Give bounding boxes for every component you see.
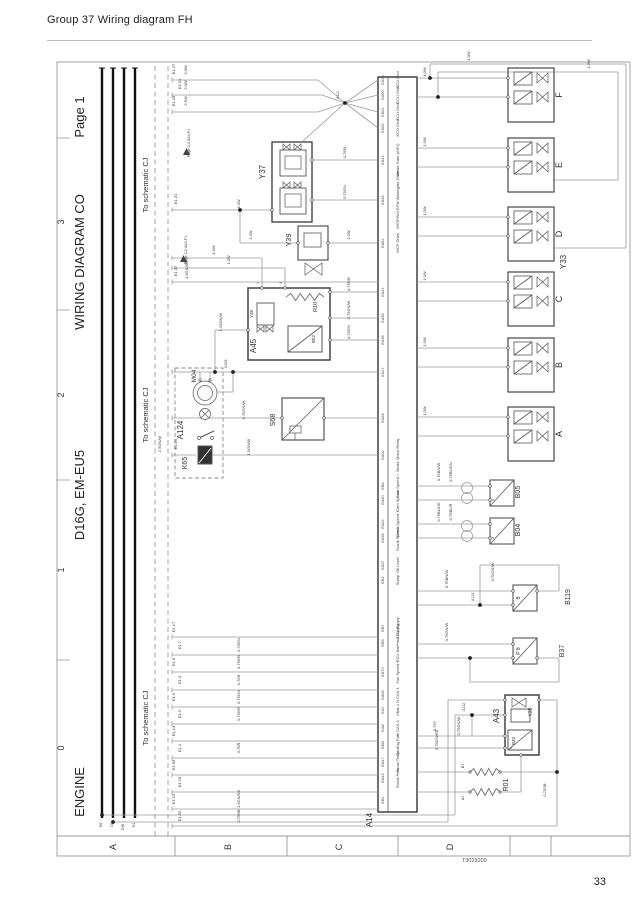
pin	[271, 209, 274, 212]
component-label: R10	[313, 302, 319, 312]
pin	[489, 523, 492, 526]
ecu-pin-id: EB6	[381, 482, 385, 489]
injector-letter: A	[554, 431, 564, 437]
injector-coil-diag	[514, 72, 532, 85]
wire-label: 0.75GN	[236, 638, 241, 652]
wire-label: 0.75GN/W	[456, 716, 461, 735]
ecu-pin-id: EA44	[381, 155, 385, 164]
wire-label: 0.75BL/R	[448, 504, 453, 521]
pin	[311, 199, 314, 202]
junction-label: X113	[471, 593, 475, 602]
component-label: B119	[565, 589, 572, 605]
injector-letter: C	[554, 295, 564, 302]
valve-bowtie-icon	[266, 326, 273, 332]
ecu-pin-id: EA28	[381, 413, 385, 422]
valve-bowtie-icon	[512, 698, 526, 707]
junction-label: X103	[224, 360, 228, 369]
wire-label: 0.75GR	[346, 277, 351, 291]
valve-bowtie-icon	[283, 144, 290, 150]
pin-label: E1.01	[177, 78, 182, 89]
component-label: S68	[270, 414, 277, 427]
component-label: Y39	[286, 234, 293, 247]
grid-col-d: D	[445, 843, 455, 850]
component-label: A124	[176, 420, 185, 439]
ecu-pin-id: EA48	[381, 195, 385, 204]
y37-coil-1-core	[285, 156, 301, 169]
title-diagram: WIRING DIAGRAM CO	[72, 194, 87, 330]
twisted-pair-icon	[462, 483, 473, 494]
junction-dot	[213, 370, 217, 374]
ecu-signal-name: H CAN 2	[395, 719, 400, 736]
wire-label: 0.75GR	[236, 707, 241, 721]
wire	[345, 80, 378, 103]
injector-coil-diag	[514, 411, 532, 424]
injector-coil-diag	[514, 142, 532, 155]
wire-label: 2.0W	[183, 80, 188, 90]
pin-label: E1.5	[171, 692, 176, 701]
manual-page: Group 37 Wiring diagram FH F1.0WE1.0WD1.…	[0, 0, 638, 903]
wire-label: 0.75BN/W	[436, 463, 441, 481]
pin	[507, 216, 510, 219]
wire-label: 0.75GN/SB	[434, 730, 439, 751]
sensor-s68-diag	[282, 398, 324, 440]
page-ref: Page 2-2 A44.F1	[184, 236, 188, 265]
wire	[345, 103, 378, 128]
wire	[345, 103, 378, 112]
component-label: K65	[182, 457, 189, 470]
ecu-pin-id: EA70	[381, 667, 385, 676]
injector-coil-diag	[514, 230, 532, 243]
ecu-signal-name: ECU Gnd	[395, 86, 400, 103]
junction-label: X111	[336, 91, 340, 99]
page-ref: Page 2-2 A44.F1	[187, 129, 191, 158]
component-label: Y33	[559, 254, 568, 269]
pin	[512, 643, 515, 646]
pin-label: E1.37	[173, 265, 178, 276]
temp-symbol: θ	[516, 596, 522, 599]
pin	[198, 386, 213, 401]
bus-label: 61	[131, 822, 136, 827]
injector-letter: B	[554, 362, 564, 368]
pin	[323, 417, 326, 420]
pin	[507, 235, 510, 238]
ecu-signal-name: ECU Gnd	[395, 103, 400, 120]
wire-label: 1.0W	[248, 230, 253, 240]
ecu-pin-id: EA35	[381, 313, 385, 322]
ecu-pin-id: EM3	[381, 741, 385, 749]
wire-label: 0.75GN/W	[444, 622, 449, 641]
pin-label: E1.17	[171, 621, 176, 632]
pin	[512, 657, 515, 660]
valve-bowtie-icon	[537, 92, 548, 102]
y37-coil-2-core	[285, 194, 301, 207]
wire-label: 2.5GN/W	[157, 436, 162, 453]
ecu-signal-name: Oil Level	[395, 557, 400, 573]
injector-unit-E	[508, 138, 554, 192]
unit-a45	[248, 288, 330, 360]
pin-label: E1.13	[171, 793, 176, 804]
resistor-zigzag-icon	[470, 789, 500, 796]
ecu-signal-name: ECU BatPwrd Supply	[395, 624, 400, 662]
pin-label: E1.3	[177, 675, 182, 684]
component-label: Y38	[249, 310, 254, 319]
valve-bowtie-icon	[537, 296, 548, 306]
ecu-signal-name: Cam Speed -	[395, 488, 400, 512]
pressure-temp-symbol: P θ	[516, 647, 522, 655]
pin	[329, 291, 332, 294]
injector-letter: E	[554, 162, 564, 168]
title-variant: D16G, EM-EU5	[72, 450, 87, 540]
component-label: B37	[559, 645, 566, 658]
ecu-signal-name: WCP Drive	[395, 232, 400, 252]
junction-dot	[470, 713, 474, 717]
junction-dot	[478, 603, 482, 607]
pin	[261, 287, 264, 290]
sensor-b05-diag	[490, 480, 514, 506]
twisted-pair-icon	[462, 531, 473, 542]
y39-coil-core	[304, 233, 321, 247]
injector-unit-C	[508, 272, 554, 326]
injector-coil-diag	[514, 161, 532, 174]
injector-letter: F	[554, 92, 564, 98]
ecu-signal-name: Fan Speed +	[395, 660, 400, 684]
component-label: A43	[492, 708, 501, 723]
pin	[504, 714, 507, 717]
valve-bowtie-icon	[257, 326, 264, 332]
pin-label: E1.2	[177, 709, 182, 718]
grid-row-2: 2	[56, 392, 66, 397]
junction-dot	[555, 770, 559, 774]
pin	[199, 379, 201, 381]
wire-label: 0.75EL	[342, 145, 347, 158]
pin	[507, 366, 510, 369]
resistor-zigzag-icon	[286, 294, 324, 301]
component-label: M04	[191, 369, 198, 382]
valve-bowtie-icon	[294, 144, 301, 150]
ecu-signal-name: WG/PWM EPM Wastegate Drive	[395, 170, 400, 229]
ecu-pin-id: EA40	[381, 495, 385, 504]
injector-coil-diag	[514, 295, 532, 308]
valve-y39	[298, 226, 328, 260]
junction-dot	[428, 76, 432, 80]
y37-coil-1	[280, 150, 306, 176]
wire-label: 1.0W	[586, 59, 591, 69]
drawing-number: T3029209	[462, 858, 487, 864]
valve-bowtie-icon	[537, 162, 548, 172]
wire-label: 0.75BL/GE	[436, 502, 441, 522]
pin	[507, 300, 510, 303]
bus-label: DI6	[120, 823, 125, 830]
pin	[504, 735, 507, 738]
junction-dot	[468, 656, 472, 660]
grid-col-c: C	[334, 843, 344, 850]
to-schematic-cj: To schematic CJ	[141, 157, 150, 212]
ecu-pin-id: EA22	[381, 519, 385, 528]
component-label: B04	[515, 524, 522, 537]
ecu-pin-id: EA50	[381, 90, 385, 99]
wire	[318, 80, 345, 103]
pin-label: E1.09	[171, 759, 176, 770]
wire-label: 1.0W	[422, 206, 427, 216]
pin	[536, 657, 539, 660]
pin	[536, 590, 539, 593]
title-page: Page 1	[72, 96, 87, 137]
component-label: R01	[503, 778, 510, 791]
pin	[247, 329, 250, 332]
pin	[193, 381, 217, 405]
pin	[507, 347, 510, 350]
wire-label: 0.75GN/W	[241, 400, 246, 419]
ecu-signal-name: H CAN 1	[395, 686, 400, 703]
component-label: A45	[249, 338, 258, 353]
component-label: Y37	[258, 164, 267, 179]
ecu-pin-id: EA47	[381, 757, 385, 766]
ecu-signal-name: ECU Gnd	[395, 71, 400, 88]
pin-label: 4	[279, 282, 283, 284]
injector-coil-diag	[514, 91, 532, 104]
pin-label: E1.7	[177, 640, 182, 649]
pin-label: E1.25	[173, 438, 178, 449]
twisted-pair-icon	[462, 493, 473, 504]
ecu-pin-id: EA17	[381, 367, 385, 376]
junction-dot	[231, 370, 235, 374]
ecu-signal-name: ECU Gnd	[395, 119, 400, 136]
pin	[507, 166, 510, 169]
junction-dot	[436, 95, 440, 99]
wire-label: 0.75GN	[236, 690, 241, 704]
pin	[211, 437, 214, 440]
injector-unit-F	[508, 68, 554, 122]
ecu-pin-id: EA36	[381, 335, 385, 344]
wire-label: 1.0W	[422, 337, 427, 347]
pin-label: n	[491, 499, 495, 501]
pin	[520, 754, 523, 757]
page-number: 33	[594, 876, 606, 888]
pin	[507, 416, 510, 419]
valve-bowtie-icon	[537, 362, 548, 372]
ecu-pin-id: EA43	[381, 773, 385, 782]
pin	[284, 287, 287, 290]
wire-label: 0.75Y	[432, 720, 437, 731]
valve-bowtie-icon	[537, 277, 548, 287]
wire-label: 0.75R	[236, 675, 241, 686]
ecu-pin-id: EA30	[381, 75, 385, 84]
bus-label: 60	[98, 822, 103, 827]
wire-label: 1.0W	[226, 255, 231, 265]
pin	[329, 317, 332, 320]
grid-row-1: 1	[56, 567, 66, 572]
wire-label: 0.75GN	[346, 325, 351, 339]
wire-label: 0.75GN	[342, 185, 347, 199]
ecu-pin-id: EB1	[381, 796, 385, 803]
valve-bowtie-icon	[537, 212, 548, 222]
wire-label: 1.0W	[422, 271, 427, 281]
wire-label: 1.0W	[422, 406, 427, 416]
wire-label: 1.0W	[236, 199, 241, 209]
pin-label: B1	[461, 764, 465, 768]
ecu-pin-id: EB2	[381, 576, 385, 583]
pin	[512, 590, 515, 593]
wire-label: 1.0W	[466, 51, 471, 61]
grid-row-3: 3	[56, 219, 66, 224]
injector-coil-diag	[514, 211, 532, 224]
pin	[327, 242, 330, 245]
wire-label: 1.5GN/SB	[236, 790, 241, 808]
ecu-pin-id: EA37	[381, 560, 385, 569]
pin	[507, 435, 510, 438]
ecu-pin-id: EA7	[381, 706, 385, 713]
valve-bowtie-icon	[305, 263, 322, 275]
wire-label: 1.0W	[422, 67, 427, 77]
wire-label: 0.75R	[236, 743, 241, 754]
pin-label: n	[509, 747, 513, 749]
pin	[198, 437, 201, 440]
pin-label: 1	[256, 282, 260, 284]
pin	[297, 242, 300, 245]
component-label: B05	[515, 486, 522, 499]
title-engine: ENGINE	[72, 767, 87, 817]
pin-label: E1.27	[171, 63, 176, 74]
junction-dot	[343, 101, 347, 105]
wire	[318, 103, 345, 112]
injector-unit-D	[508, 207, 554, 261]
wire-label: 0.75GR	[236, 655, 241, 669]
ecu-signal-name: Crank Speed -	[395, 524, 400, 550]
ecu-signal-name: Boost Pres	[395, 768, 400, 788]
junction-label: X112	[462, 703, 466, 712]
injector-coil-diag	[514, 342, 532, 355]
component-label: B52	[311, 335, 316, 344]
wire-label: 1.0W	[211, 245, 216, 255]
valve-bowtie-icon	[537, 343, 548, 353]
wire-label: 0.75GN/W	[490, 562, 495, 581]
ecu-signal-name: Brake Motor Relay	[395, 438, 400, 471]
pin	[507, 96, 510, 99]
pin	[504, 747, 507, 750]
ecu-signal-name: VBat-1	[395, 703, 400, 716]
component-label: B32	[511, 737, 516, 746]
pin-label: E1.15	[177, 776, 182, 787]
wire-label: 1.0GN/W	[246, 439, 251, 456]
ecu-pin-id: EA21	[381, 287, 385, 296]
pin-label: E1.14	[171, 725, 176, 736]
to-schematic-cj: To schematic CJ	[141, 387, 150, 442]
pin-label: E1.1	[177, 743, 182, 752]
injector-coil-diag	[514, 276, 532, 289]
wire-label: 2.0W	[183, 65, 188, 75]
valve-bowtie-icon	[537, 231, 548, 241]
ecu-pin-id: EA51	[381, 107, 385, 116]
wire-label: 0.75SB	[236, 809, 241, 822]
pin	[329, 339, 332, 342]
ecu-pin-id: EA61	[381, 238, 385, 247]
injector-coil-diag	[514, 361, 532, 374]
resistor-zigzag-icon	[470, 769, 500, 776]
valve-bowtie-icon	[537, 73, 548, 83]
twisted-pair-icon	[462, 521, 473, 532]
pin-label: A1	[461, 796, 465, 800]
injector-unit-A	[508, 407, 554, 461]
pin	[281, 417, 284, 420]
grid-col-a: A	[108, 844, 118, 850]
wire-label: 1.25GN/W	[218, 312, 223, 331]
injector-letter: D	[554, 230, 564, 237]
ecu-pin-id: EA52	[381, 123, 385, 132]
pin	[504, 699, 507, 702]
ecu-pin-id: EB7	[381, 624, 385, 631]
injector-unit-B	[508, 338, 554, 392]
grid-row-0: 0	[56, 745, 66, 750]
pin-label: n	[491, 537, 495, 539]
wire-label: 0.75GN/W	[346, 300, 351, 319]
bus-label: 15	[109, 822, 114, 827]
pin-label: E1.32	[177, 810, 182, 821]
valve-bowtie-icon	[294, 182, 301, 188]
component-label: Y35	[528, 707, 534, 716]
wire-label: 0.75BL/GN	[448, 462, 453, 482]
to-schematic-cj: To schematic CJ	[141, 690, 150, 745]
wire-label: 0.75SB	[542, 783, 547, 796]
pin	[507, 77, 510, 80]
pin-label: E1.6	[171, 657, 176, 666]
y37-coil-2	[280, 188, 306, 214]
pin	[507, 281, 510, 284]
wire	[345, 95, 378, 103]
valve-bowtie-icon	[537, 412, 548, 422]
wire-label: 2.5W	[183, 96, 188, 106]
injector-coil-diag	[514, 430, 532, 443]
wire-label: 1.0W	[422, 137, 427, 147]
ecu-pin-id: EA02	[381, 450, 385, 459]
wiring-diagram: F1.0WE1.0WD1.0WC1.0WB1.0WA1.0WPage 1WIRI…	[0, 0, 638, 903]
ecu-signal-name: Sump	[395, 574, 400, 585]
pin	[507, 147, 510, 150]
pin	[209, 379, 211, 381]
wire	[322, 95, 345, 103]
ecu-pin-id: EB5	[381, 639, 385, 646]
sensor-b52-diag	[288, 326, 322, 352]
pin-label: E1.31	[173, 193, 178, 204]
pin	[489, 485, 492, 488]
pin	[311, 159, 314, 162]
component-label: A14	[365, 812, 374, 827]
valve-bowtie-icon	[537, 143, 548, 153]
ecu-pin-id: EA8	[381, 724, 385, 731]
wire	[302, 103, 345, 142]
ecu-pin-id: EA56	[381, 690, 385, 699]
pin-label: E1.29	[171, 95, 176, 106]
ecu-pin-id: EA39	[381, 533, 385, 542]
valve-bowtie-icon	[537, 431, 548, 441]
wire-label: 0.75BN/W	[444, 570, 449, 588]
sensor-b04-diag	[490, 518, 514, 544]
grid-col-b: B	[223, 844, 233, 850]
wire-label: 1.0W	[346, 230, 351, 240]
valve-bowtie-icon	[283, 182, 290, 188]
pin	[512, 604, 515, 607]
pin	[538, 699, 541, 702]
valve-y38	[257, 303, 274, 325]
junction-dot	[100, 813, 104, 817]
